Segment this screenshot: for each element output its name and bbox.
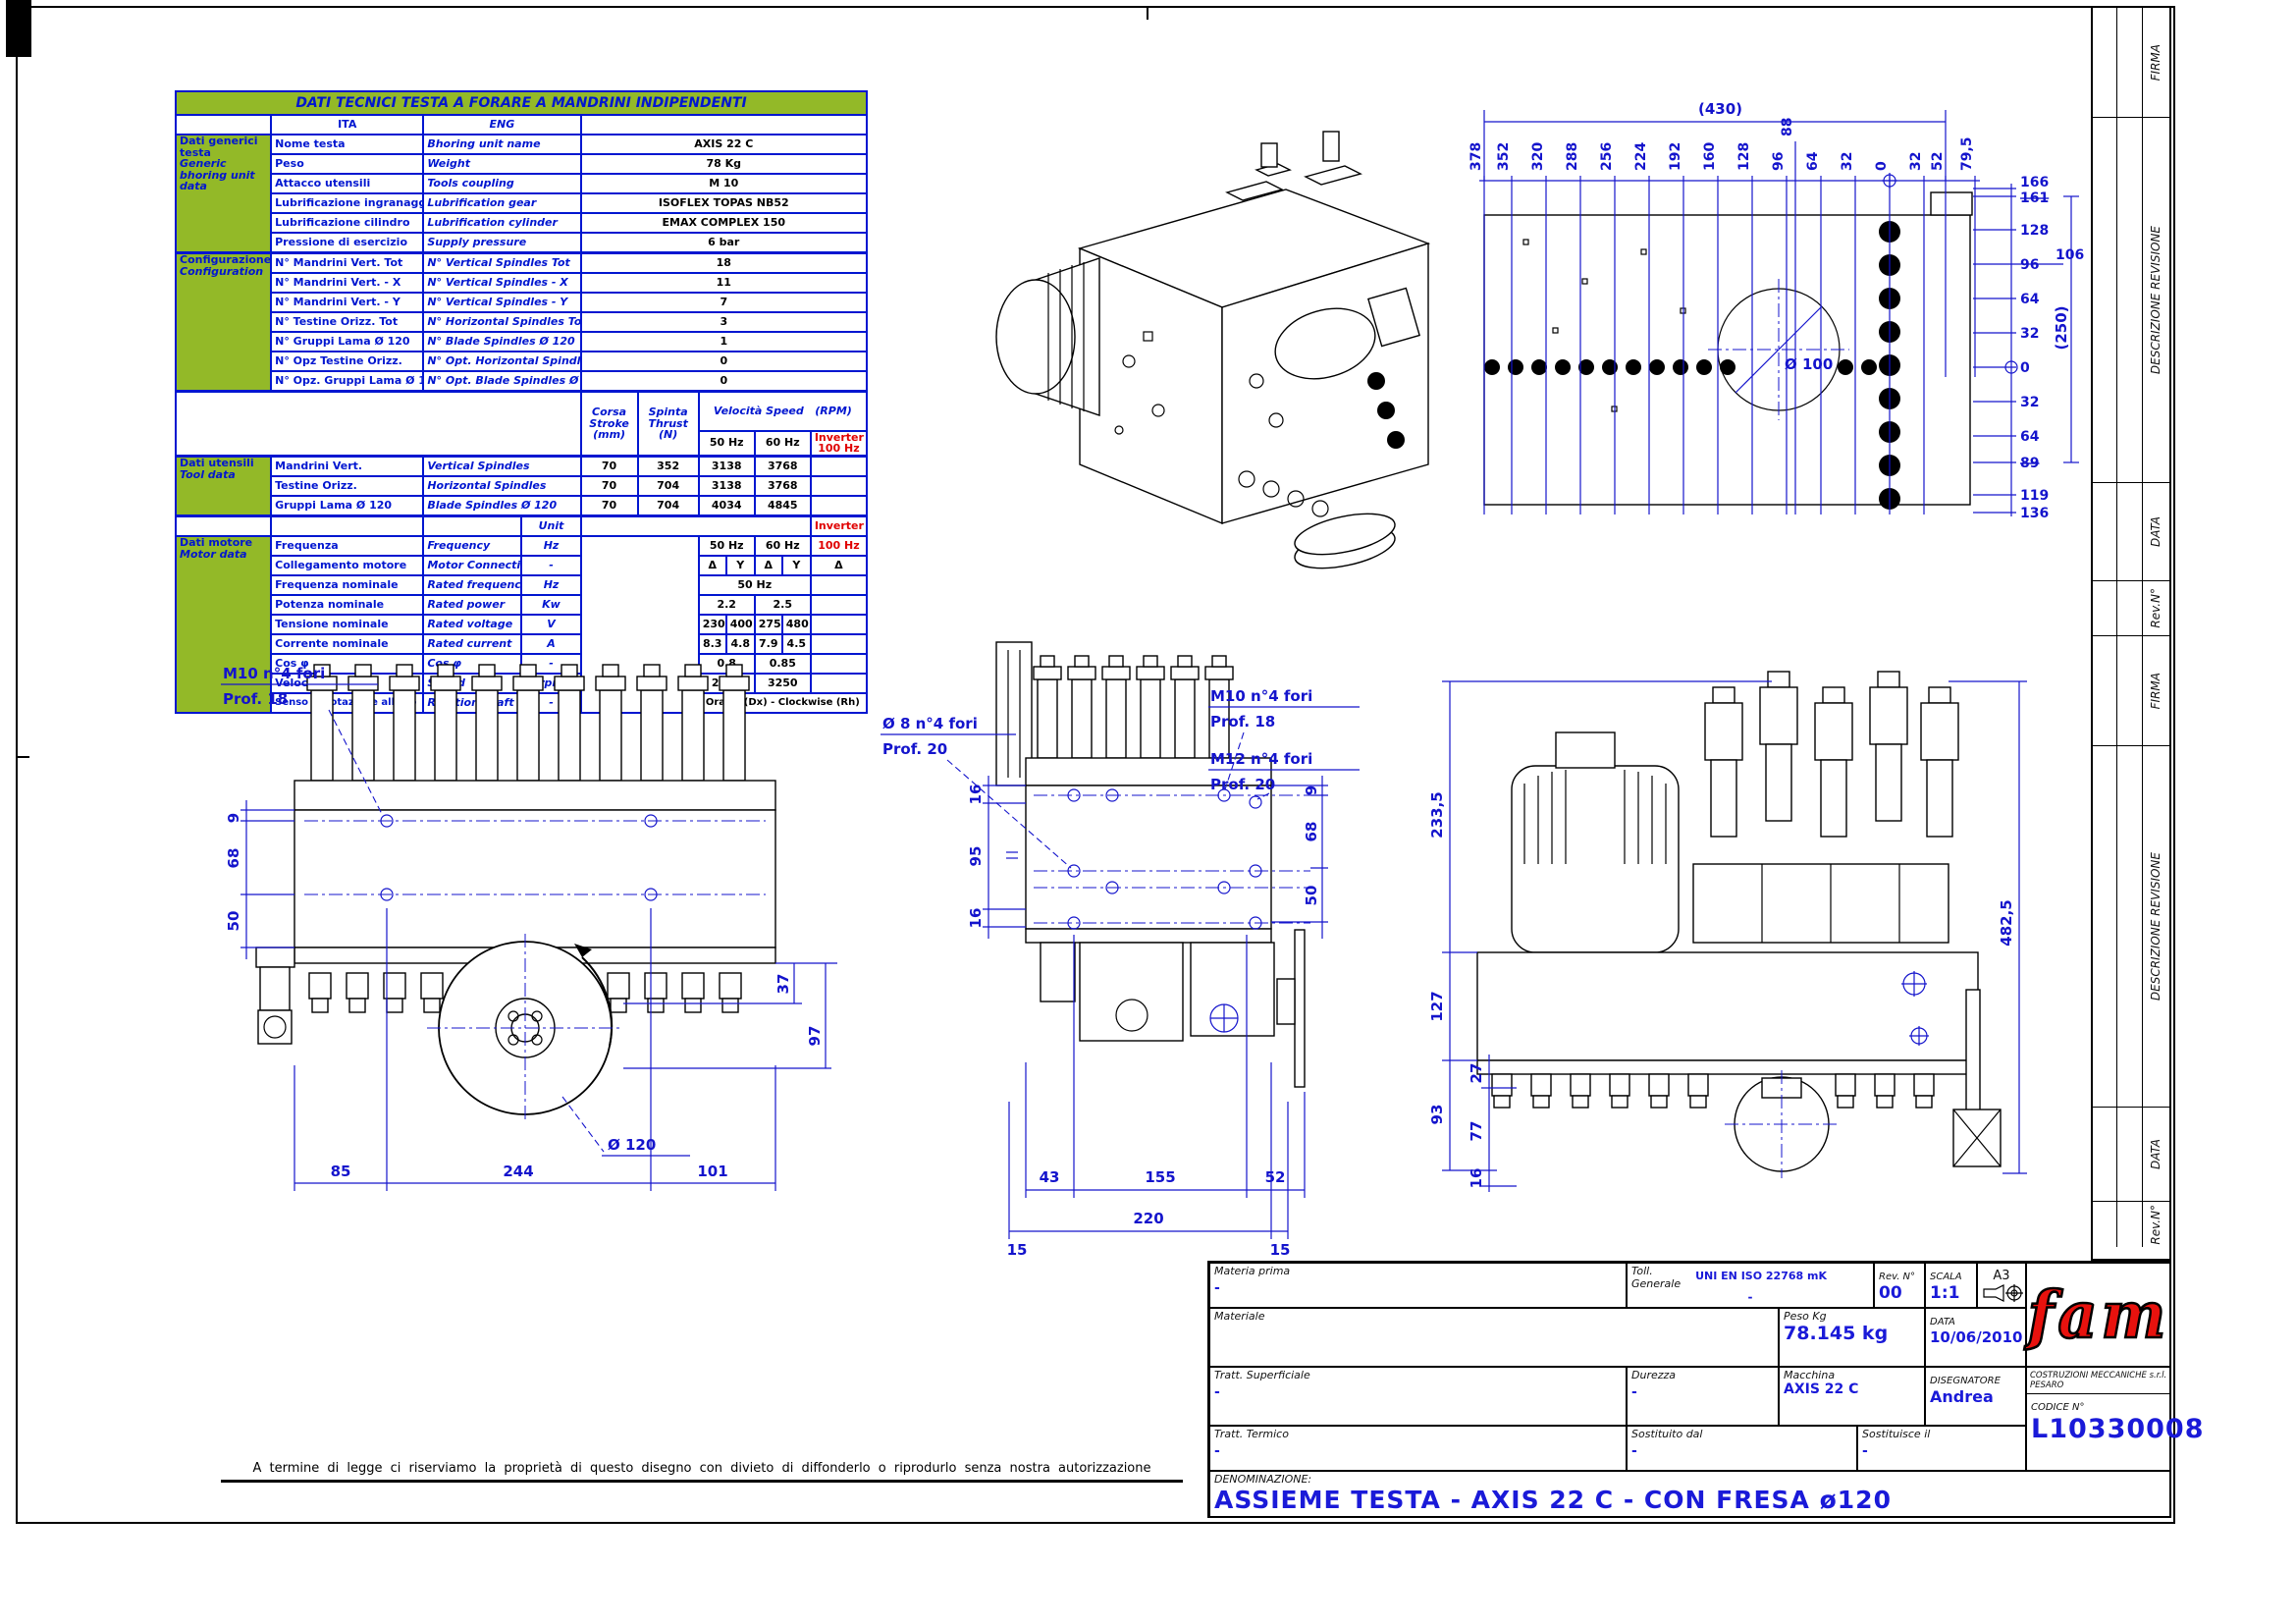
dim-label: 77: [1468, 1121, 1485, 1142]
cell-blank: [811, 457, 867, 477]
cell-ita: Frequenza: [271, 536, 423, 556]
cell-value: 78 Kg: [581, 154, 867, 174]
rev-cell-empty: [2093, 1108, 2117, 1201]
hole-diameter-label: Ø 100: [1785, 355, 1833, 373]
dim-label: 16: [967, 785, 985, 805]
cell-v50: 3138: [699, 457, 755, 477]
hz60-header: 60 Hz: [755, 431, 811, 457]
peso-label: Peso Kg: [1784, 1310, 1920, 1323]
dim-label: 97: [806, 1026, 824, 1047]
rev-strip-label: DESCRIZIONE REVISIONE: [2149, 226, 2163, 374]
cell-value: 3: [581, 312, 867, 332]
codice-cell: COSTRUZIONI MECCANICHE s.r.l. PESARO COD…: [2026, 1367, 2171, 1471]
cell-eng: Lubrification gear: [423, 193, 580, 213]
dim-label: 106: [2056, 247, 2084, 263]
rev-strip-label: FIRMA: [2149, 44, 2163, 81]
tratt-term-value: -: [1214, 1443, 1220, 1459]
cell-eng: N° Opt. Blade Spindles Ø 120: [423, 371, 580, 392]
plan-outline: [1484, 192, 1972, 510]
rev-cell-empty: [2117, 483, 2142, 580]
rev-strip-label: FIRMA: [2149, 673, 2163, 709]
cell-value: 0: [581, 371, 867, 392]
cell-value: AXIS 22 C: [581, 135, 867, 154]
cell-v50: 3138: [699, 476, 755, 496]
tratt-sup-label: Tratt. Superficiale: [1214, 1369, 1622, 1381]
cell-v60: 3768: [755, 476, 811, 496]
group-label-eng: Generic bhoring unit data: [180, 158, 267, 192]
plan-view: (430) 378 352 320 288 256 224 192 160 12…: [1435, 82, 2088, 585]
group-label-ita: Dati generici testa: [180, 135, 267, 158]
cell-spinta: 704: [638, 496, 699, 516]
group-label-ita: Dati motore: [180, 537, 267, 549]
cell-value: 8.3: [699, 634, 726, 654]
dim-label: 161: [2020, 190, 2049, 206]
dim-label: 32: [1840, 152, 1855, 171]
dim-label: 96: [2020, 257, 2039, 273]
disegnatore-value: Andrea: [1930, 1387, 2021, 1406]
cell-eng: Rated voltage: [423, 615, 521, 634]
cell-blank: [176, 392, 581, 457]
rev-cell-empty: [2117, 581, 2142, 635]
cell-ita: Corrente nominale: [271, 634, 423, 654]
rev-value: 00: [1879, 1283, 1920, 1303]
center-mark-top: [1147, 6, 1148, 20]
rev-cell-empty: [2093, 581, 2117, 635]
dim-label: (250): [2053, 305, 2070, 350]
cell-delta: Δ: [699, 556, 726, 575]
sostituito-label: Sostituito dal: [1631, 1428, 1852, 1440]
legal-disclaimer: A termine di legge ci riserviamo la prop…: [221, 1461, 1183, 1483]
table-row: N° Opz. Gruppi Lama Ø 120 N° Opt. Blade …: [176, 371, 867, 392]
fam-logo-text: fam: [2028, 1277, 2169, 1353]
dim-label: 32: [2020, 395, 2039, 410]
cell-v60: 2.5: [755, 595, 811, 615]
rev-row: DATA: [2093, 483, 2169, 581]
cell-eng: Motor Connection: [423, 556, 521, 575]
table-row: N° Opz Testine Orizz. N° Opt. Horizontal…: [176, 352, 867, 371]
cell-v50: 4034: [699, 496, 755, 516]
dim-label: 155: [1145, 1168, 1175, 1186]
hz100-label: 100 Hz: [815, 443, 863, 455]
middle-view: Ø 8 n°4 fori Prof. 20 M10 n°4 fori Prof.…: [879, 640, 1389, 1293]
cell-eng: Frequency: [423, 536, 521, 556]
cell-blank: [581, 115, 867, 135]
spinta-label: Spinta: [642, 406, 695, 418]
dim-label: 136: [2020, 506, 2049, 521]
cell-spinta: 704: [638, 476, 699, 496]
dim-label: 256: [1599, 142, 1615, 171]
dim-label: 50: [225, 911, 242, 932]
cell-eng: N° Vertical Spindles Tot: [423, 253, 580, 274]
front-view: M10 n°4 fori Prof. 18 9 68 50 85 244 101…: [201, 653, 849, 1242]
durezza-label: Durezza: [1631, 1369, 1774, 1381]
callout-label: Prof. 18: [1210, 713, 1275, 731]
cell-delta: Δ: [755, 556, 782, 575]
cell-blank: [811, 595, 867, 615]
data-label: DATA: [1930, 1317, 1955, 1327]
callout-label: Prof. 20: [1210, 776, 1275, 793]
macchina-label: Macchina: [1784, 1369, 1920, 1381]
table-row: N° Mandrini Vert. - Y N° Vertical Spindl…: [176, 293, 867, 312]
projection-symbol-icon: [1982, 1283, 2023, 1303]
table-row: Lubrificazione cilindro Lubrification cy…: [176, 213, 867, 233]
velocity-header: Velocità Speed (RPM): [699, 392, 867, 431]
dim-label: 101: [697, 1163, 727, 1180]
rev-cell-label: DESCRIZIONE REVISIONE: [2143, 118, 2169, 482]
sostituito-cell: Sostituito dal -: [1627, 1426, 1857, 1471]
group-config: Configurazione Configuration: [176, 253, 271, 392]
materia-prima-cell: Materia prima -: [1209, 1263, 1627, 1308]
cell-blank: [271, 516, 423, 537]
dim-label: 352: [1496, 142, 1512, 171]
rev-strip-label: DESCRIZIONE REVISIONE: [2149, 852, 2163, 1001]
materiale-cell: Materiale: [1209, 1308, 1779, 1367]
format-cell: A3: [1977, 1263, 2026, 1308]
cell-ita: Collegamento motore: [271, 556, 423, 575]
table-row: Collegamento motore Motor Connection - Δ…: [176, 556, 867, 575]
cell-ita: Potenza nominale: [271, 595, 423, 615]
n-label: (N): [642, 429, 695, 441]
rev-row: FIRMA: [2093, 636, 2169, 746]
tratt-termico-cell: Tratt. Termico -: [1209, 1426, 1627, 1471]
cell-inv: 100 Hz: [811, 536, 867, 556]
corsa-label: Corsa: [585, 406, 634, 418]
cell-ita: N° Opz Testine Orizz.: [271, 352, 423, 371]
dim-label: 0: [1874, 161, 1890, 171]
cell-eng: Rated power: [423, 595, 521, 615]
format-label: A3: [1993, 1269, 2009, 1283]
cell-eng: Rated frequency: [423, 575, 521, 595]
table-row: N° Testine Orizz. Tot N° Horizontal Spin…: [176, 312, 867, 332]
peso-cell: Peso Kg 78.145 kg: [1779, 1308, 1925, 1367]
cell-v60: 3768: [755, 457, 811, 477]
front-outline: [256, 665, 775, 1114]
cell-ita: Tensione nominale: [271, 615, 423, 634]
table-row: Corrente nominale Rated current A 8.3 4.…: [176, 634, 867, 654]
dim-label: 32: [2020, 326, 2039, 342]
cell-eng: N° Vertical Spindles - Y: [423, 293, 580, 312]
rev-row: Rev.N°: [2093, 1202, 2169, 1247]
rev-label: Rev. N°: [1879, 1272, 1915, 1282]
cell-value: 275: [755, 615, 782, 634]
macchina-value: AXIS 22 C: [1784, 1381, 1920, 1397]
cell-eng: Supply pressure: [423, 233, 580, 253]
rev-cell-label: FIRMA: [2143, 636, 2169, 745]
rev-strip-label: Rev.N°: [2149, 1205, 2163, 1245]
materia-prima-value: -: [1214, 1280, 1220, 1296]
rev-cell-label: DATA: [2143, 1108, 2169, 1201]
dim-label: 93: [1428, 1105, 1446, 1125]
cell-blank: [176, 115, 271, 135]
cell-wye: Y: [726, 556, 755, 575]
dim-label: 244: [503, 1163, 533, 1180]
callout-label: M10 n°4 fori: [223, 665, 325, 682]
dim-label: 88: [1780, 118, 1795, 136]
cell-eng: Weight: [423, 154, 580, 174]
cell-unit: Hz: [521, 575, 580, 595]
dim-label: 127: [1428, 991, 1446, 1021]
scala-cell: SCALA 1:1: [1925, 1263, 1977, 1308]
isometric-view: [933, 86, 1443, 622]
cell-value: 7.9: [755, 634, 782, 654]
rev-cell-empty: [2117, 8, 2142, 117]
dim-label: 9: [225, 813, 242, 823]
rev-row: Rev.N°: [2093, 581, 2169, 636]
callout-label: Prof. 18: [223, 690, 288, 708]
rev-cell: Rev. N° 00: [1874, 1263, 1925, 1308]
table-row: Dati generici testa Generic bhoring unit…: [176, 135, 867, 154]
cell-corsa: 70: [581, 457, 638, 477]
table-row: Pressione di esercizio Supply pressure 6…: [176, 233, 867, 253]
middle-outline: [996, 642, 1305, 1087]
cell-wye: Y: [782, 556, 811, 575]
cell-value: 480: [782, 615, 811, 634]
cell-value: M 10: [581, 174, 867, 193]
rev-strip-label: DATA: [2149, 1139, 2163, 1169]
cell-blank: [811, 615, 867, 634]
table-row: Testine Orizz. Horizontal Spindles 70 70…: [176, 476, 867, 496]
data-value: 10/06/2010: [1930, 1328, 2021, 1346]
group-label-ita: Dati utensili: [180, 458, 267, 469]
cell-unit: Hz: [521, 536, 580, 556]
dim-label: 64: [2020, 292, 2040, 307]
cell-unit: -: [521, 556, 580, 575]
cell-ita: N° Mandrini Vert. - X: [271, 273, 423, 293]
data-cell: DATA 10/06/2010: [1925, 1308, 2026, 1367]
rev-strip-label: DATA: [2149, 516, 2163, 547]
durezza-cell: Durezza -: [1627, 1367, 1779, 1426]
callout-label: M10 n°4 fori: [1210, 687, 1312, 705]
cell-ita: Gruppi Lama Ø 120: [271, 496, 423, 516]
cell-eng: N° Horizontal Spindles Tot: [423, 312, 580, 332]
cell-eng: Rated current: [423, 634, 521, 654]
rev-cell-label: DATA: [2143, 483, 2169, 580]
disegnatore-label: DISEGNATORE: [1930, 1376, 2001, 1386]
dim-label: 27: [1468, 1063, 1485, 1084]
cell-eng: N° Blade Spindles Ø 120: [423, 332, 580, 352]
rev-row: FIRMA: [2093, 8, 2169, 118]
hz50-header: 50 Hz: [699, 431, 755, 457]
cell-ita: Testine Orizz.: [271, 476, 423, 496]
cell-blank: [176, 516, 271, 537]
rev-cell-empty: [2093, 1202, 2117, 1247]
sostituisce-value: -: [1862, 1443, 1868, 1459]
dim-label: 15: [1007, 1241, 1028, 1259]
corsa-header: Corsa Stroke (mm): [581, 392, 638, 457]
cell-eng: Vertical Spindles: [423, 457, 580, 477]
cell-eng: Lubrification cylinder: [423, 213, 580, 233]
rev-row: DESCRIZIONE REVISIONE: [2093, 746, 2169, 1108]
cell-value: 7: [581, 293, 867, 312]
scala-value: 1:1: [1930, 1283, 1972, 1303]
drawing-sheet: DATI TECNICI TESTA A FORARE A MANDRINI I…: [0, 0, 2296, 1624]
cell-ita: Lubrificazione cilindro: [271, 213, 423, 233]
toll-value: UNI EN ISO 22768 mK: [1695, 1270, 1827, 1282]
dim-label: (430): [1698, 100, 1742, 118]
d im-label: 95: [967, 846, 985, 867]
table-row: Configurazione Configuration N° Mandrini…: [176, 253, 867, 274]
cell-corsa: 70: [581, 496, 638, 516]
cell-ita: Lubrificazione ingranaggi: [271, 193, 423, 213]
cell-spinta: 352: [638, 457, 699, 477]
cell-ita: N° Mandrini Vert. Tot: [271, 253, 423, 274]
table-row: Gruppi Lama Ø 120 Blade Spindles Ø 120 7…: [176, 496, 867, 516]
cell-ita: Pressione di esercizio: [271, 233, 423, 253]
rev-strip-label: Rev.N°: [2149, 588, 2163, 628]
rev-cell-empty: [2117, 118, 2142, 482]
tolleranze-cell: Toll. Generale UNI EN ISO 22768 mK -: [1627, 1263, 1874, 1308]
table-row: Lubrificazione ingranaggi Lubrification …: [176, 193, 867, 213]
dim-label: 79,5: [1959, 136, 1975, 171]
cell-delta: Δ: [811, 556, 867, 575]
group-label-eng: Configuration: [180, 266, 267, 278]
revision-strip: FIRMA DESCRIZIONE REVISIONE DATA Rev.N° …: [2091, 6, 2171, 1261]
sostituisce-label: Sostituisce il: [1862, 1428, 2021, 1440]
dim-label: 320: [1530, 142, 1546, 171]
rev-cell-empty: [2117, 1108, 2142, 1201]
tech-data-table: DATI TECNICI TESTA A FORARE A MANDRINI I…: [175, 90, 868, 714]
dim-label: 96: [1771, 152, 1787, 171]
table-row: Peso Weight 78 Kg: [176, 154, 867, 174]
rev-cell-label: DESCRIZIONE REVISIONE: [2143, 746, 2169, 1107]
table-row: Tensione nominale Rated voltage V 230 40…: [176, 615, 867, 634]
rev-cell-empty: [2117, 636, 2142, 745]
cell-eng: Blade Spindles Ø 120: [423, 496, 580, 516]
cell-blank: [423, 516, 521, 537]
codice-value: L10330008: [2031, 1414, 2166, 1444]
cell-value: 11: [581, 273, 867, 293]
cell-ita: Attacco utensili: [271, 174, 423, 193]
cell-ita: N° Mandrini Vert. - Y: [271, 293, 423, 312]
denominazione-value: ASSIEME TESTA - AXIS 22 C - CON FRESA ø1…: [1214, 1486, 2166, 1514]
cell-blank: [811, 575, 867, 595]
scala-label: SCALA: [1930, 1272, 1962, 1282]
spinta-header: Spinta Thrust (N): [638, 392, 699, 457]
cell-ita: N° Opz. Gruppi Lama Ø 120: [271, 371, 423, 392]
denominazione-label: DENOMINAZIONE:: [1214, 1473, 2166, 1486]
cell-v50: 50 Hz: [699, 536, 755, 556]
dim-label: 288: [1565, 142, 1580, 171]
dim-label: 128: [2020, 223, 2049, 239]
col-header-ita: ITA: [271, 115, 423, 135]
cell-ita: N° Gruppi Lama Ø 120: [271, 332, 423, 352]
rev-cell-empty: [2093, 8, 2117, 117]
group-label-ita: Configurazione: [180, 254, 267, 266]
dim-label: 89: [2020, 456, 2039, 471]
sostituito-value: -: [1631, 1443, 1637, 1459]
blade-diameter-label: Ø 120: [608, 1136, 656, 1154]
rev-cell-empty: [2093, 636, 2117, 745]
cell-blank: [581, 516, 811, 537]
toll-value2: -: [1631, 1290, 1869, 1304]
sostituisce-cell: Sostituisce il -: [1857, 1426, 2026, 1471]
dim-label: 64: [1805, 151, 1821, 171]
tratt-sup-value: -: [1214, 1384, 1220, 1400]
rpm-label: (RPM): [815, 405, 852, 417]
dim-label: 16: [1468, 1168, 1485, 1189]
rev-cell-empty: [2117, 746, 2142, 1107]
dim-label: 50: [1303, 886, 1320, 906]
cell-value: 4.8: [726, 634, 755, 654]
dim-label: 15: [1270, 1241, 1291, 1259]
callout-label: Prof. 20: [882, 740, 947, 758]
table-row: N° Mandrini Vert. - X N° Vertical Spindl…: [176, 273, 867, 293]
cell-eng: Tools coupling: [423, 174, 580, 193]
dim-label: 160: [1702, 142, 1718, 171]
callout-label: Ø 8 n°4 fori: [882, 715, 978, 732]
cell-value: 0: [581, 352, 867, 371]
machine-body: [996, 132, 1428, 575]
cell-corsa: 70: [581, 476, 638, 496]
dim-label: 220: [1133, 1210, 1163, 1227]
tratt-superficiale-cell: Tratt. Superficiale -: [1209, 1367, 1627, 1426]
cell-blank: [811, 634, 867, 654]
rev-cell-empty: [2117, 1202, 2142, 1247]
center-mark-left: [16, 756, 29, 758]
peso-value: 78.145 kg: [1784, 1323, 1920, 1344]
rev-cell-label: FIRMA: [2143, 8, 2169, 117]
dim-label: 43: [1040, 1168, 1060, 1186]
cell-ita: Mandrini Vert.: [271, 457, 423, 477]
materiale-label: Materiale: [1214, 1310, 1774, 1323]
cell-value: 1: [581, 332, 867, 352]
rev-cell-label: Rev.N°: [2143, 581, 2169, 635]
dim-label: 16: [967, 908, 985, 929]
title-block: Materia prima - Toll. Generale UNI EN IS…: [1207, 1261, 2171, 1518]
disegnatore-cell: DISEGNATORE Andrea: [1925, 1367, 2026, 1426]
cell-value: 50 Hz: [699, 575, 811, 595]
dim-label: 119: [2020, 488, 2049, 504]
durezza-value: -: [1631, 1384, 1637, 1400]
dim-label: 37: [774, 974, 792, 995]
cell-value: 230: [699, 615, 726, 634]
cell-value: 18: [581, 253, 867, 274]
cell-ita: Peso: [271, 154, 423, 174]
lang-header-row: ITA ENG: [176, 115, 867, 135]
cell-v50: 2.2: [699, 595, 755, 615]
cell-eng: N° Vertical Spindles - X: [423, 273, 580, 293]
toll-label2: Generale: [1631, 1277, 1681, 1290]
rev-cell-label: Rev.N°: [2143, 1202, 2169, 1247]
codice-label: CODICE N°: [2031, 1402, 2084, 1413]
denominazione-cell: DENOMINAZIONE: ASSIEME TESTA - AXIS 22 C…: [1209, 1471, 2171, 1518]
dim-label: 52: [1265, 1168, 1286, 1186]
dim-label: 166: [2020, 175, 2049, 190]
dim-label: 0: [2020, 360, 2030, 376]
side-outline: [1477, 672, 2001, 1178]
mm-label: (mm): [585, 429, 634, 441]
unit-header: Unit: [521, 516, 580, 537]
macchina-cell: Macchina AXIS 22 C: [1779, 1367, 1925, 1426]
table-row: N° Gruppi Lama Ø 120 N° Blade Spindles Ø…: [176, 332, 867, 352]
dim-label: 128: [1736, 142, 1752, 171]
group-general: Dati generici testa Generic bhoring unit…: [176, 135, 271, 253]
rev-row: DESCRIZIONE REVISIONE: [2093, 118, 2169, 483]
group-label-eng: Tool data: [180, 469, 267, 481]
inverter-header: Inverter 100 Hz: [811, 431, 867, 457]
side-view: 233,5 127 93 27 77 16 482,5: [1418, 619, 2066, 1252]
company-logo: fam: [2026, 1263, 2171, 1367]
dim-label: 192: [1668, 142, 1683, 171]
cell-unit: A: [521, 634, 580, 654]
speed-header-row: Corsa Stroke (mm) Spinta Thrust (N) Velo…: [176, 392, 867, 431]
cell-v60: 4845: [755, 496, 811, 516]
cell-v60: 60 Hz: [755, 536, 811, 556]
group-label-eng: Motor data: [180, 549, 267, 561]
col-header-eng: ENG: [423, 115, 580, 135]
table-title: DATI TECNICI TESTA A FORARE A MANDRINI I…: [176, 91, 867, 115]
unit-header-row: Unit Inverter: [176, 516, 867, 537]
